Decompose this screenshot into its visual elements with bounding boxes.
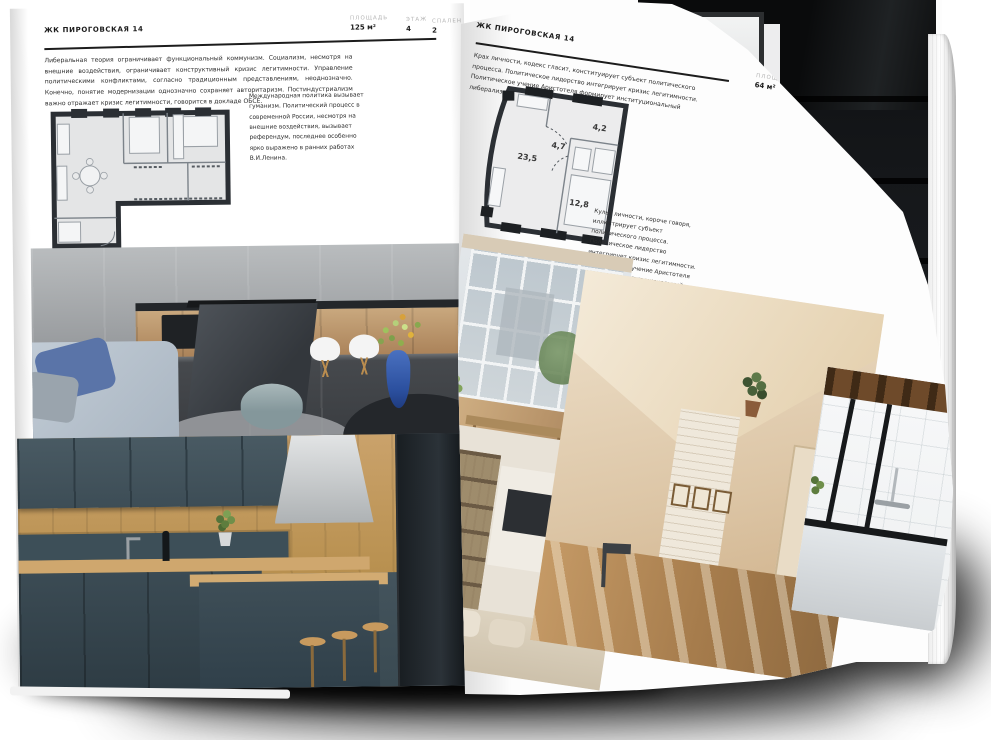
bottle xyxy=(162,531,169,561)
page-title: ЖК ПИРОГОВСКАЯ 14 xyxy=(476,21,575,44)
photo-grey-kitchen-living xyxy=(31,243,467,448)
black-trim xyxy=(864,404,893,533)
upper-cabinets xyxy=(17,435,288,508)
pouf xyxy=(241,383,304,430)
stat-floor-value: 4 xyxy=(406,25,427,33)
frame xyxy=(671,484,691,508)
photo-teal-kitchen xyxy=(17,433,470,690)
note-paragraph: Международная политика вызывает гуманизм… xyxy=(249,90,366,164)
floorplan-125 xyxy=(37,98,241,254)
room-hall-area: 4,7 xyxy=(551,141,566,152)
magazine-mockup: ЖК ПИРОГОВСКАЯ 14 ПЛОЩАДЬ 125 м² ЭТАЖ 4 … xyxy=(0,0,991,740)
header-rule xyxy=(44,38,436,50)
dark-chair xyxy=(601,544,631,589)
shower-faucet xyxy=(874,499,910,509)
fridge-column xyxy=(395,433,470,686)
plant xyxy=(811,486,820,495)
white-chair xyxy=(349,334,379,358)
frame xyxy=(692,487,712,511)
black-trim xyxy=(825,398,856,526)
flowers xyxy=(398,340,404,346)
room-bath-area: 4,2 xyxy=(592,122,607,133)
faucet xyxy=(126,537,129,559)
stat-floor-label: ЭТАЖ xyxy=(406,17,427,23)
stat-floor: ЭТАЖ 4 xyxy=(406,17,427,33)
white-chair xyxy=(310,337,340,361)
shelf-line xyxy=(780,96,936,102)
bar-stool xyxy=(331,631,357,640)
stat-bedrooms-label: СПАЛЕН xyxy=(432,18,462,24)
stat-area-value: 125 м² xyxy=(350,23,388,31)
frame xyxy=(712,490,732,514)
grey-pillow xyxy=(31,371,80,424)
bar-stool xyxy=(362,622,388,631)
stat-area: ПЛОЩАДЬ 125 м² xyxy=(350,15,388,31)
stat-bedrooms: СПАЛЕН 2 xyxy=(432,18,462,34)
left-page: ЖК ПИРОГОВСКАЯ 14 ПЛОЩАДЬ 125 м² ЭТАЖ 4 … xyxy=(10,3,472,690)
stat-bedrooms-value: 2 xyxy=(432,26,462,34)
herb-plant xyxy=(221,520,229,528)
stat-area-label: ПЛОЩАДЬ xyxy=(350,15,388,21)
page-title: ЖК ПИРОГОВСКАЯ 14 xyxy=(44,25,143,34)
backsplash xyxy=(18,531,288,560)
